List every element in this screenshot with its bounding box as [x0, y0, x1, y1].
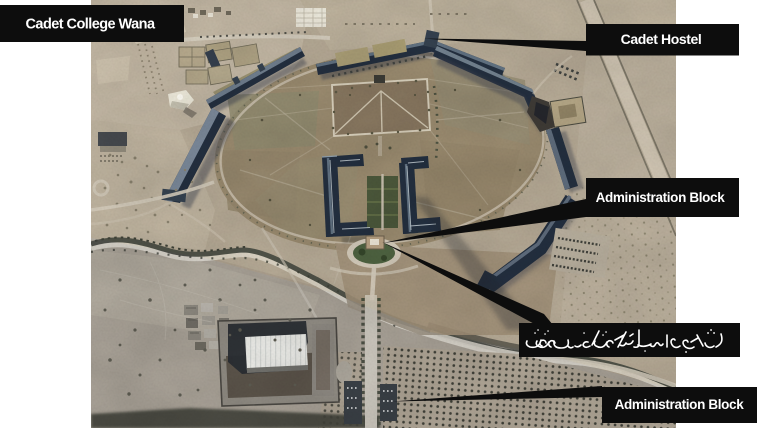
svg-text:Administration Block: Administration Block [615, 397, 745, 412]
svg-text:Cadet College Wana: Cadet College Wana [26, 16, 156, 32]
svg-text:Cadet Hostel: Cadet Hostel [621, 31, 702, 47]
svg-text:Administration Block: Administration Block [596, 190, 726, 205]
